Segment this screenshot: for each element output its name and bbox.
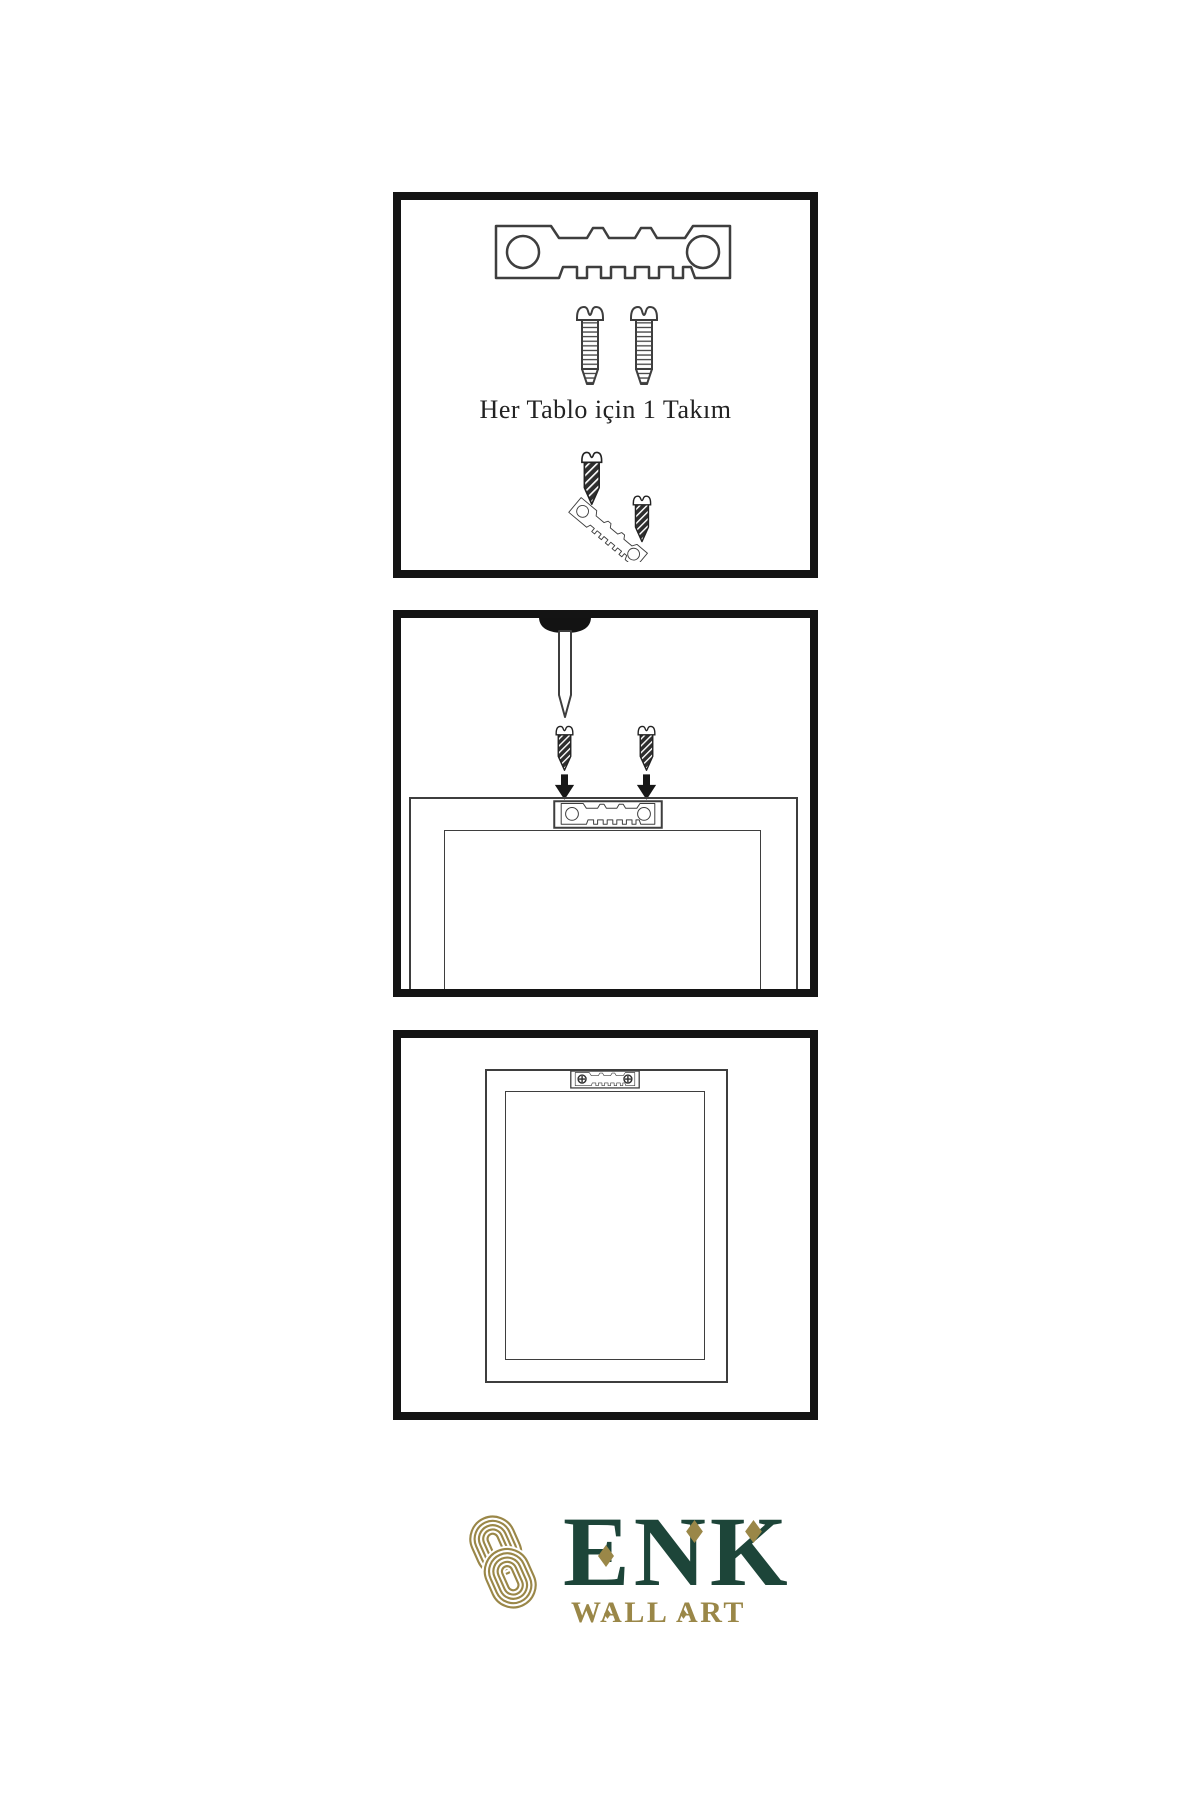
screw-icon [570, 303, 610, 388]
diamond-dot-icon [680, 1609, 687, 1619]
step-1-caption: Her Tablo için 1 Takım [401, 394, 810, 425]
diamond-accent-icon [598, 1545, 614, 1567]
frame-back-inner-edge [505, 1091, 705, 1360]
screw-into-hanger-icon [565, 450, 685, 562]
screw-icon [624, 303, 664, 388]
diamond-accent-icon [686, 1520, 703, 1543]
brand-subtitle: WALL ART [571, 1598, 746, 1628]
step-3-panel [393, 1030, 818, 1420]
screw-icon [552, 724, 577, 772]
step-1-panel: Her Tablo için 1 Takım [393, 192, 818, 578]
wall-nail-icon [539, 617, 591, 719]
sawtooth-hanger-icon [493, 223, 733, 281]
interlaced-knot-icon [447, 1503, 559, 1621]
frame-back-inner-edge [444, 830, 761, 997]
mounted-sawtooth-hanger-icon [570, 1070, 640, 1089]
sawtooth-hanger-icon [553, 800, 663, 829]
diamond-dot-icon [604, 1609, 611, 1619]
screw-icon [634, 724, 659, 772]
instruction-sheet: Her Tablo için 1 Takım [0, 0, 1200, 1800]
diamond-accent-icon [745, 1520, 762, 1543]
step-2-panel [393, 610, 818, 997]
